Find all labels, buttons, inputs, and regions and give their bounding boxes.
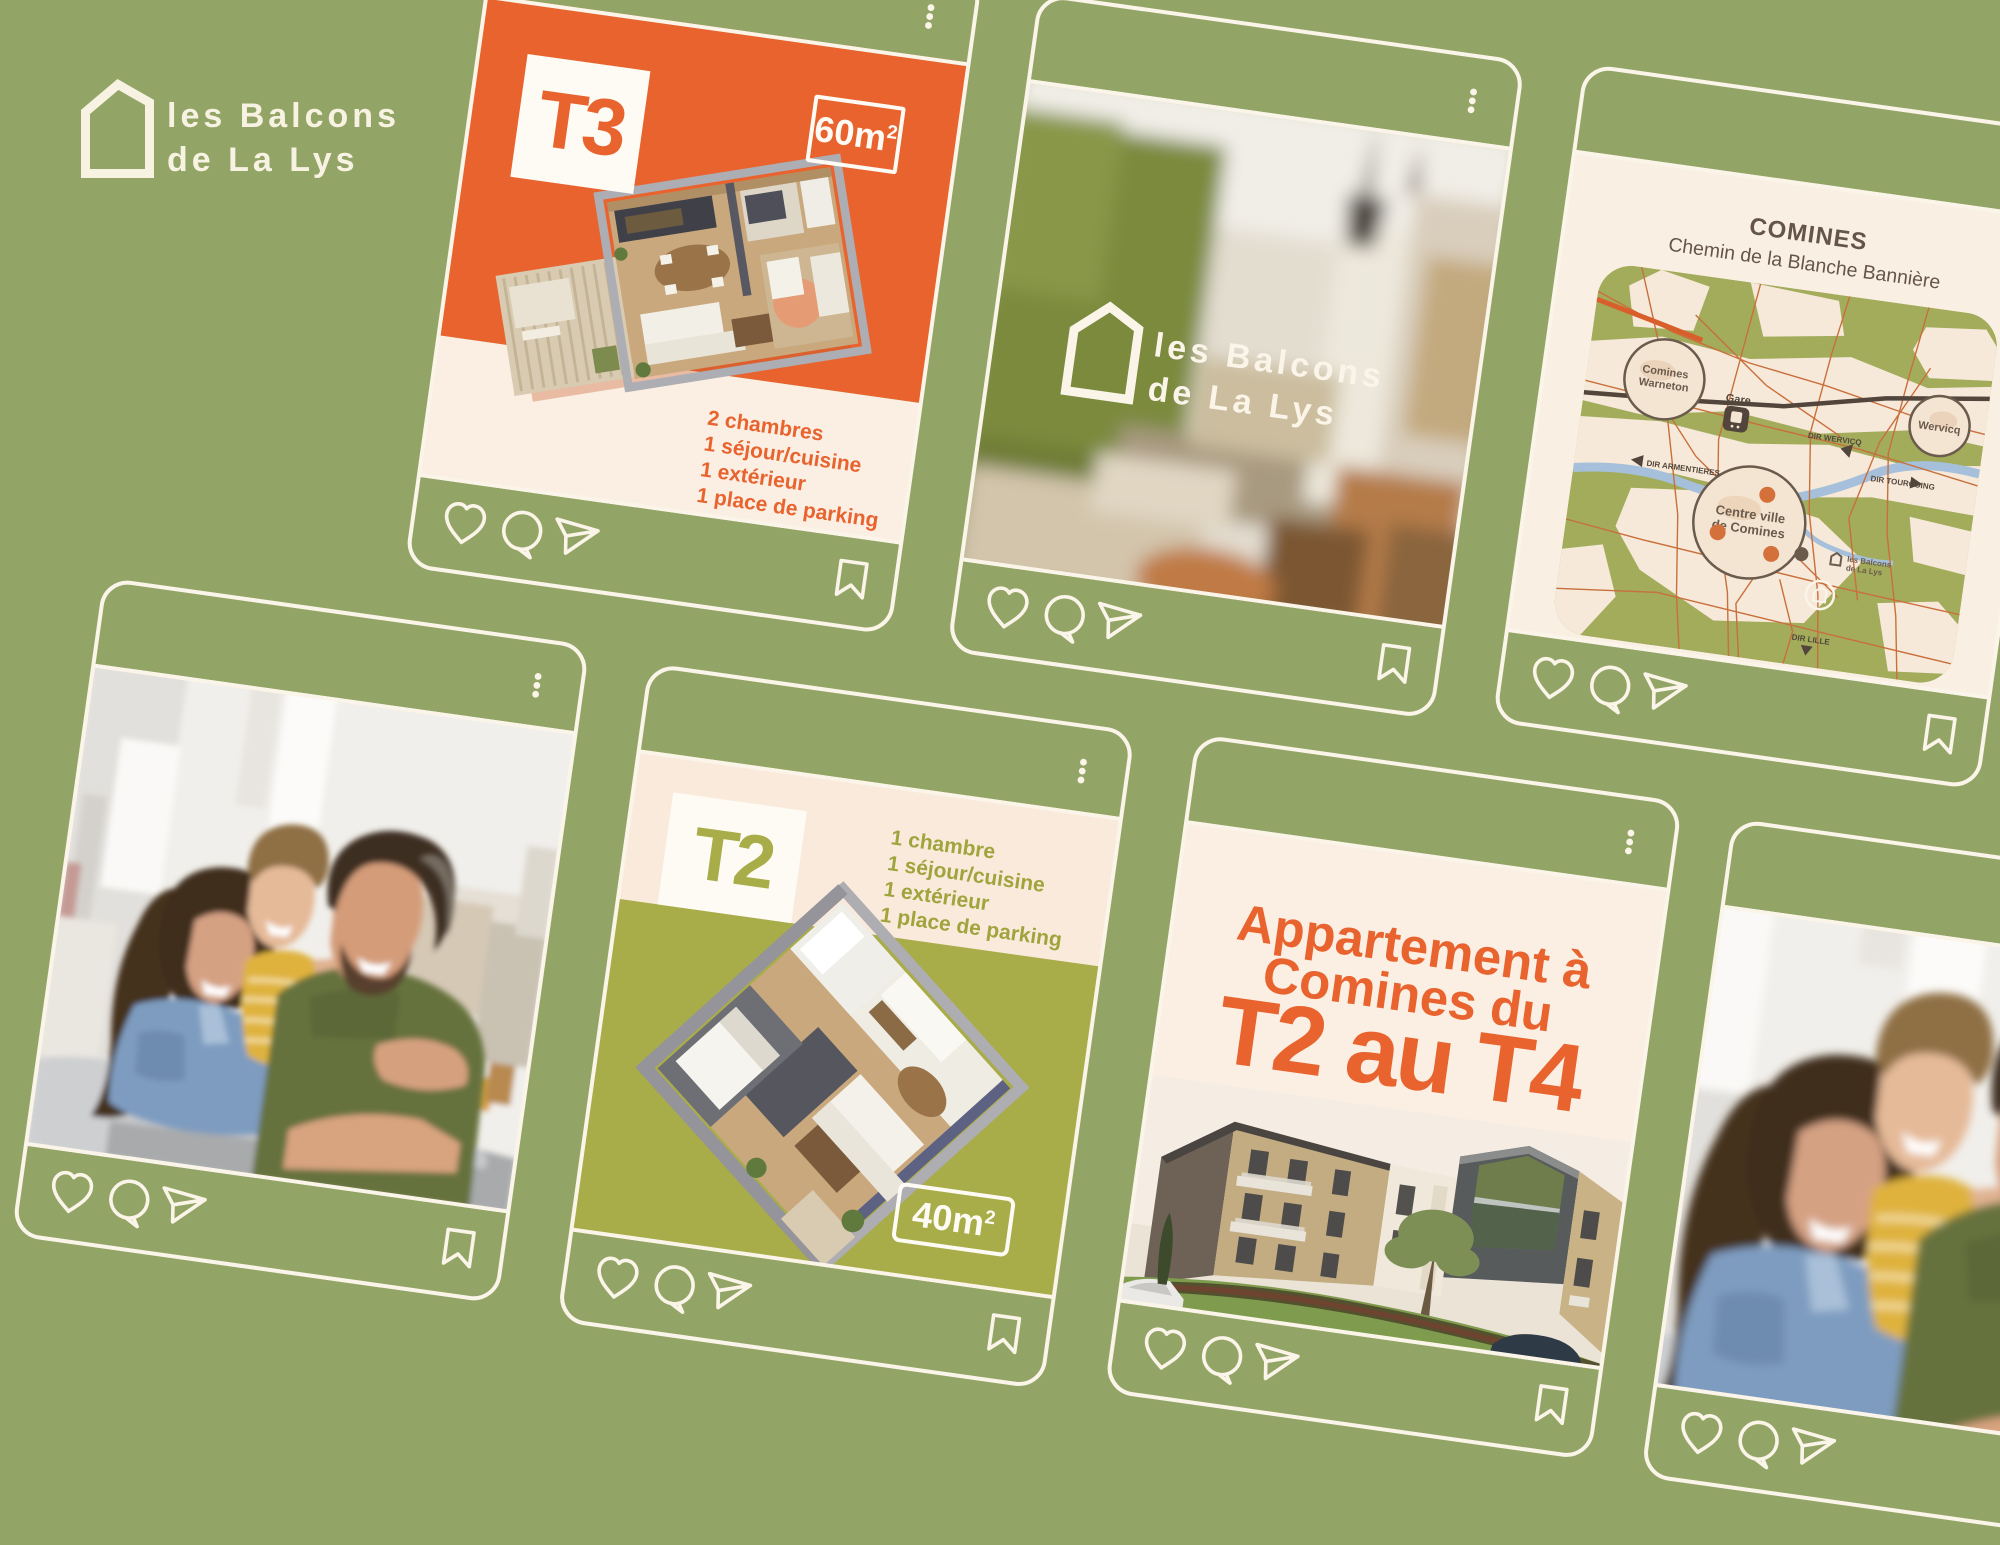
svg-text:de La Lys: de La Lys	[167, 141, 359, 179]
svg-text:les Balcons: les Balcons	[167, 97, 400, 135]
